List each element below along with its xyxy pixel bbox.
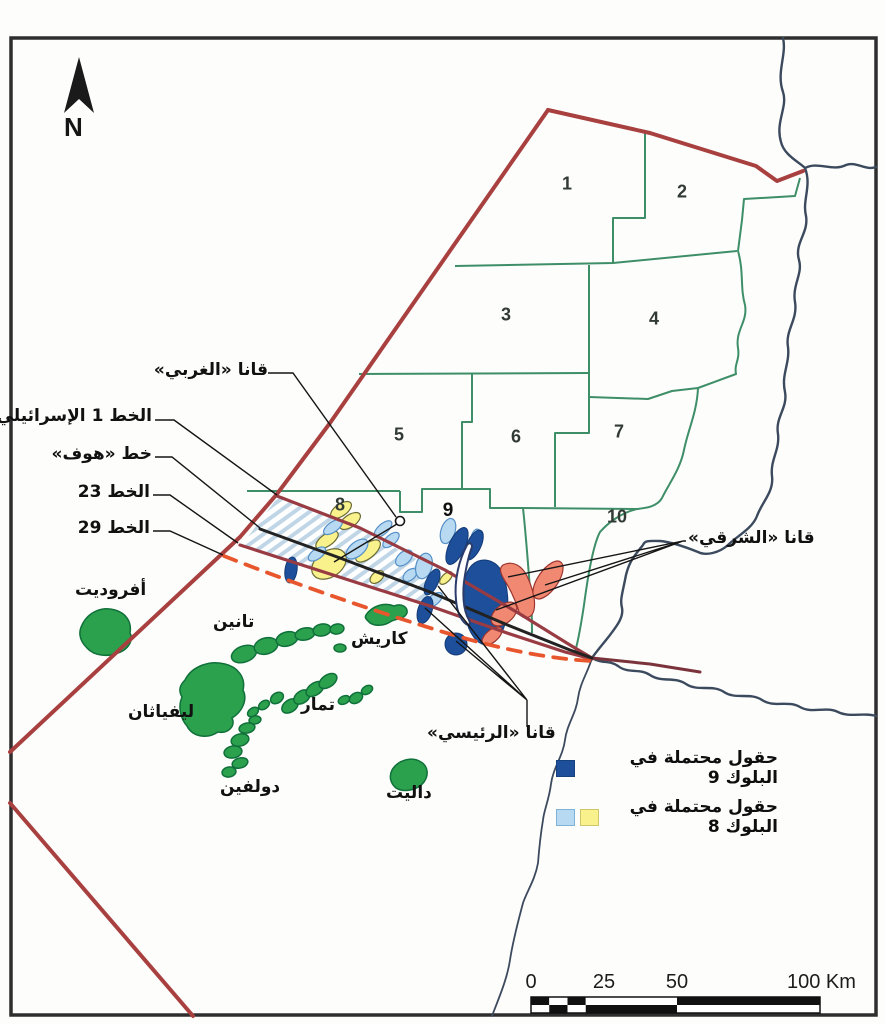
legend-row-block8: حقول محتملة في البلوك 8 bbox=[556, 797, 778, 837]
aphrodite-label: أفروديت bbox=[75, 581, 146, 600]
block9-swatch bbox=[556, 760, 575, 777]
scale-tick-0: 0 bbox=[525, 971, 536, 994]
north-label: N bbox=[64, 112, 83, 143]
block-7-number: 7 bbox=[614, 422, 624, 443]
scale-tick-25: 25 bbox=[593, 971, 615, 994]
block-3-number: 3 bbox=[501, 305, 511, 326]
block-4-number: 4 bbox=[649, 309, 659, 330]
block8-lightblue-swatch bbox=[556, 809, 575, 826]
karish-label: كاريش bbox=[351, 630, 407, 649]
tanin-label: تانين bbox=[213, 613, 254, 632]
block-8-number: 8 bbox=[335, 495, 345, 516]
legend-label-block9: حقول محتملة في البلوك 9 bbox=[580, 748, 778, 788]
scale-bar bbox=[531, 997, 820, 1013]
block-1-number: 1 bbox=[562, 174, 572, 195]
leviathan-label: ليفياثان bbox=[128, 703, 194, 722]
tamar-label: تمار bbox=[301, 696, 335, 715]
legend: حقول محتملة في البلوك 9 حقول محتملة في ا… bbox=[556, 748, 778, 846]
hof-line-label: خط «هوف» bbox=[51, 445, 152, 464]
block-5-number: 5 bbox=[394, 425, 404, 446]
legend-row-block9: حقول محتملة في البلوك 9 bbox=[556, 748, 778, 788]
qana-west-well-marker bbox=[396, 517, 405, 526]
legend-label-block8: حقول محتملة في البلوك 8 bbox=[604, 797, 778, 837]
scale-end-label: 100 Km bbox=[787, 971, 856, 994]
map-page: N 1 2 3 4 5 6 7 8 9 10 قانا «الغربي» الخ… bbox=[0, 0, 885, 1024]
qana-east-label: قانا «الشرقي» bbox=[688, 529, 815, 548]
scale-tick-50: 50 bbox=[666, 971, 688, 994]
dalit-label: داليت bbox=[386, 784, 432, 803]
block-10-number: 10 bbox=[607, 507, 627, 528]
qana-main-label: قانا «الرئيسي» bbox=[427, 724, 556, 743]
line-1-label: الخط 1 الإسرائيلي bbox=[0, 407, 152, 426]
block-9-number: 9 bbox=[443, 500, 454, 522]
line-29-label: الخط 29 bbox=[78, 519, 150, 538]
line-23-label: الخط 23 bbox=[78, 483, 150, 502]
dolphin-label: دولفين bbox=[220, 778, 280, 797]
block8-yellow-swatch bbox=[580, 809, 599, 826]
qana-west-label: قانا «الغربي» bbox=[154, 361, 268, 380]
block-6-number: 6 bbox=[511, 427, 521, 448]
block-2-number: 2 bbox=[677, 182, 687, 203]
